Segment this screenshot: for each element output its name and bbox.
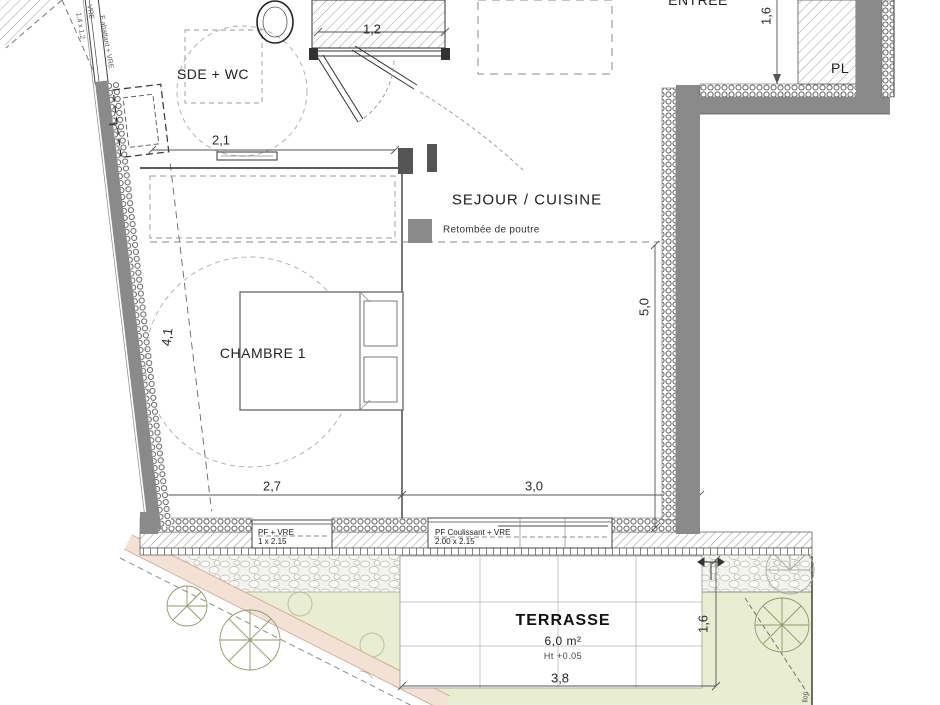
dimension-terrasse-width: 3,8 (551, 671, 569, 686)
room-label-sejour: SEJOUR / CUISINE (452, 192, 602, 209)
south-wall (140, 512, 700, 534)
window-right-label: PF Coulissant + VRE (435, 528, 510, 537)
floorplan-page: SDE + WC SEJOUR / CUISINE CHAMBRE 1 ENTR… (0, 0, 940, 705)
entry-zone (478, 0, 612, 74)
beam-legend-label: Retombée de poutre (443, 225, 540, 236)
dimension-sejour-width: 3,0 (525, 479, 543, 494)
room-label-entree: ENTREE (668, 0, 728, 8)
window-left-size: 1 x 2.15 (258, 537, 294, 546)
floorplan-drawing (0, 0, 940, 705)
beam-legend-swatch (408, 219, 432, 243)
room-label-chambre: CHAMBRE 1 (220, 345, 306, 361)
terrasse-level-value: Ht +0.05 (544, 651, 582, 661)
dimension-chambre-depth: 4,1 (158, 327, 175, 347)
bedroom (145, 170, 403, 518)
dimension-sde-width: 2,1 (212, 133, 230, 148)
dimension-sejour-depth: 5,0 (637, 298, 652, 316)
window-right-size: 2.00 x 2.15 (435, 537, 510, 546)
room-label-terrasse: TERRASSE (515, 612, 610, 630)
entry-doors (309, 0, 523, 174)
dimension-chambre-width: 2,7 (263, 479, 281, 494)
dim-line-bottom (146, 491, 704, 499)
room-label-pl: PL (831, 60, 849, 76)
dimension-entree-depth: 1,6 (759, 7, 774, 25)
living-room (150, 219, 660, 243)
terrasse-area-value: 6,0 m² (544, 634, 581, 648)
window-left-label: PF + VRE (258, 528, 294, 537)
room-label-sde: SDE + WC (177, 66, 249, 82)
window-right-annotation: PF Coulissant + VRE 2.00 x 2.15 (435, 528, 510, 546)
dimension-terrasse-depth: 1,6 (696, 615, 711, 633)
dimension-top-block: 1,2 (363, 22, 381, 37)
window-left-annotation: PF + VRE 1 x 2.15 (258, 528, 294, 546)
edge-text-fragment: llon (803, 692, 810, 703)
